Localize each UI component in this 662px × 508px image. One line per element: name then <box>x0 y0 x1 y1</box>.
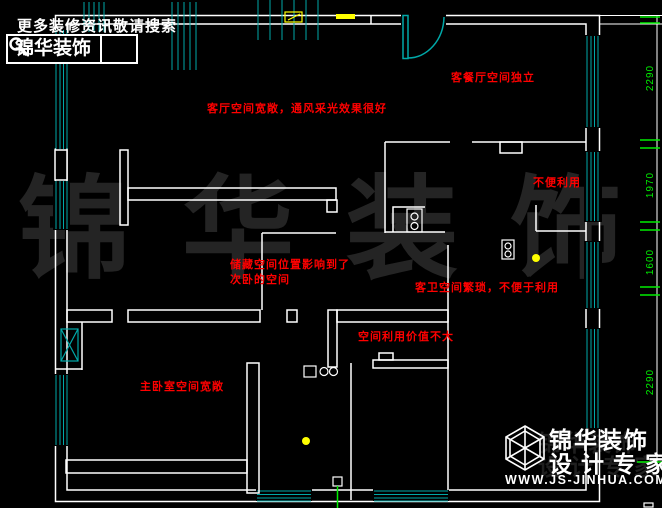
annotation-low-value: 空间利用价值不大 <box>358 328 454 344</box>
shaft-icon <box>61 329 78 361</box>
branding-tagline: 更多装修资讯敬请搜索 <box>17 15 177 36</box>
annotation-storage-line1: 储藏空间位置影响到了 <box>230 256 350 272</box>
annotation-unusable: 不便利用 <box>533 174 581 190</box>
dimension-label: 1600 <box>645 240 657 284</box>
annotation-living-room: 客厅空间宽敞，通风采光效果很好 <box>207 100 387 116</box>
footer-website: WWW.JS-JINHUA.COM <box>505 473 662 487</box>
annotation-storage-line2: 次卧的空间 <box>230 271 290 287</box>
annotation-guest-bath: 客卫空间繁琐，不便于利用 <box>415 279 559 295</box>
window-box <box>55 150 67 180</box>
dimension-label: 2290 <box>645 56 657 100</box>
annotation-master-bedroom: 主卧室空间宽敞 <box>140 378 224 394</box>
floor-plan-page: 锦华装饰 锦华装饰 设计专家 <box>0 0 662 508</box>
dimension-label: 2290 <box>645 360 657 404</box>
search-icon <box>100 36 136 62</box>
dimension-label: 1970 <box>645 163 657 207</box>
branding-box: 锦华装饰 <box>6 34 138 64</box>
annotation-dining-room: 客餐厅空间独立 <box>451 69 535 85</box>
